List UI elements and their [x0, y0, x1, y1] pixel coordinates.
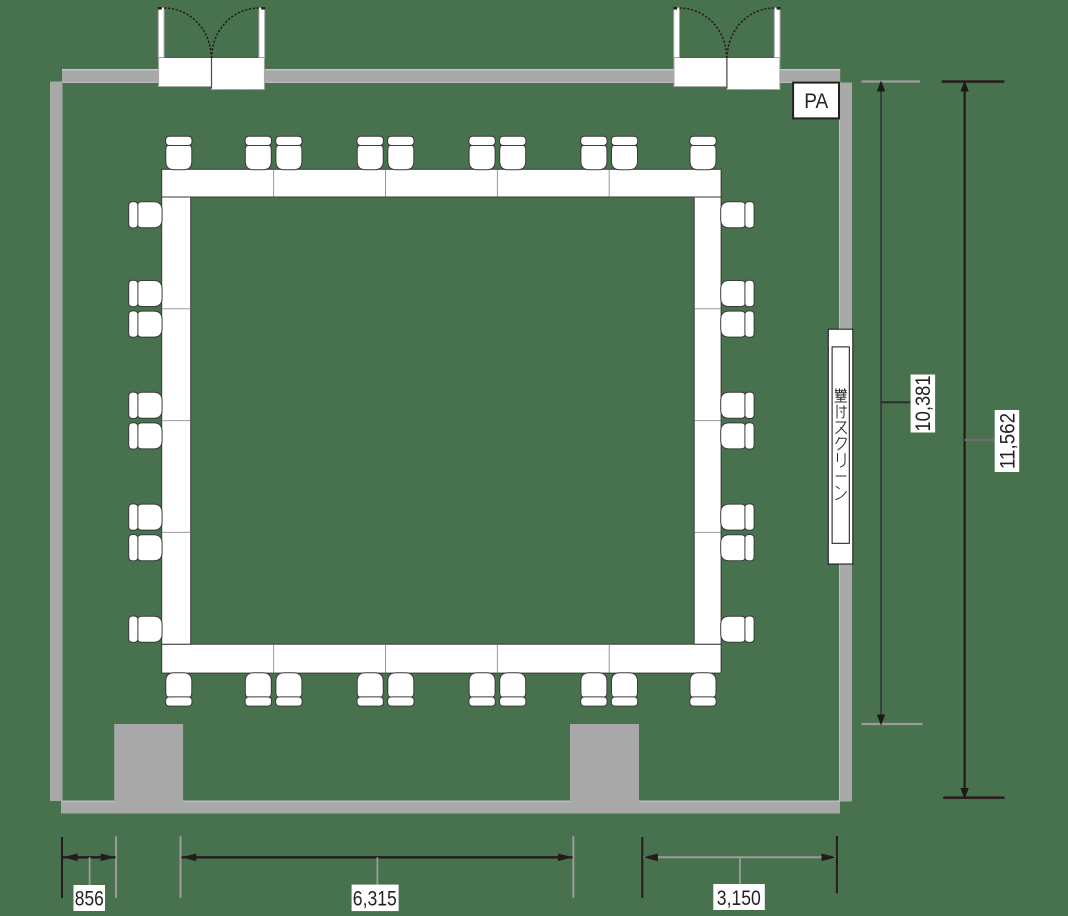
svg-text:856: 856 — [75, 888, 104, 911]
svg-text:11,562: 11,562 — [996, 413, 1019, 469]
svg-text:10,381: 10,381 — [912, 376, 935, 432]
svg-text:3,150: 3,150 — [717, 887, 761, 910]
svg-text:PA: PA — [804, 89, 829, 113]
svg-text:6,315: 6,315 — [353, 888, 397, 911]
